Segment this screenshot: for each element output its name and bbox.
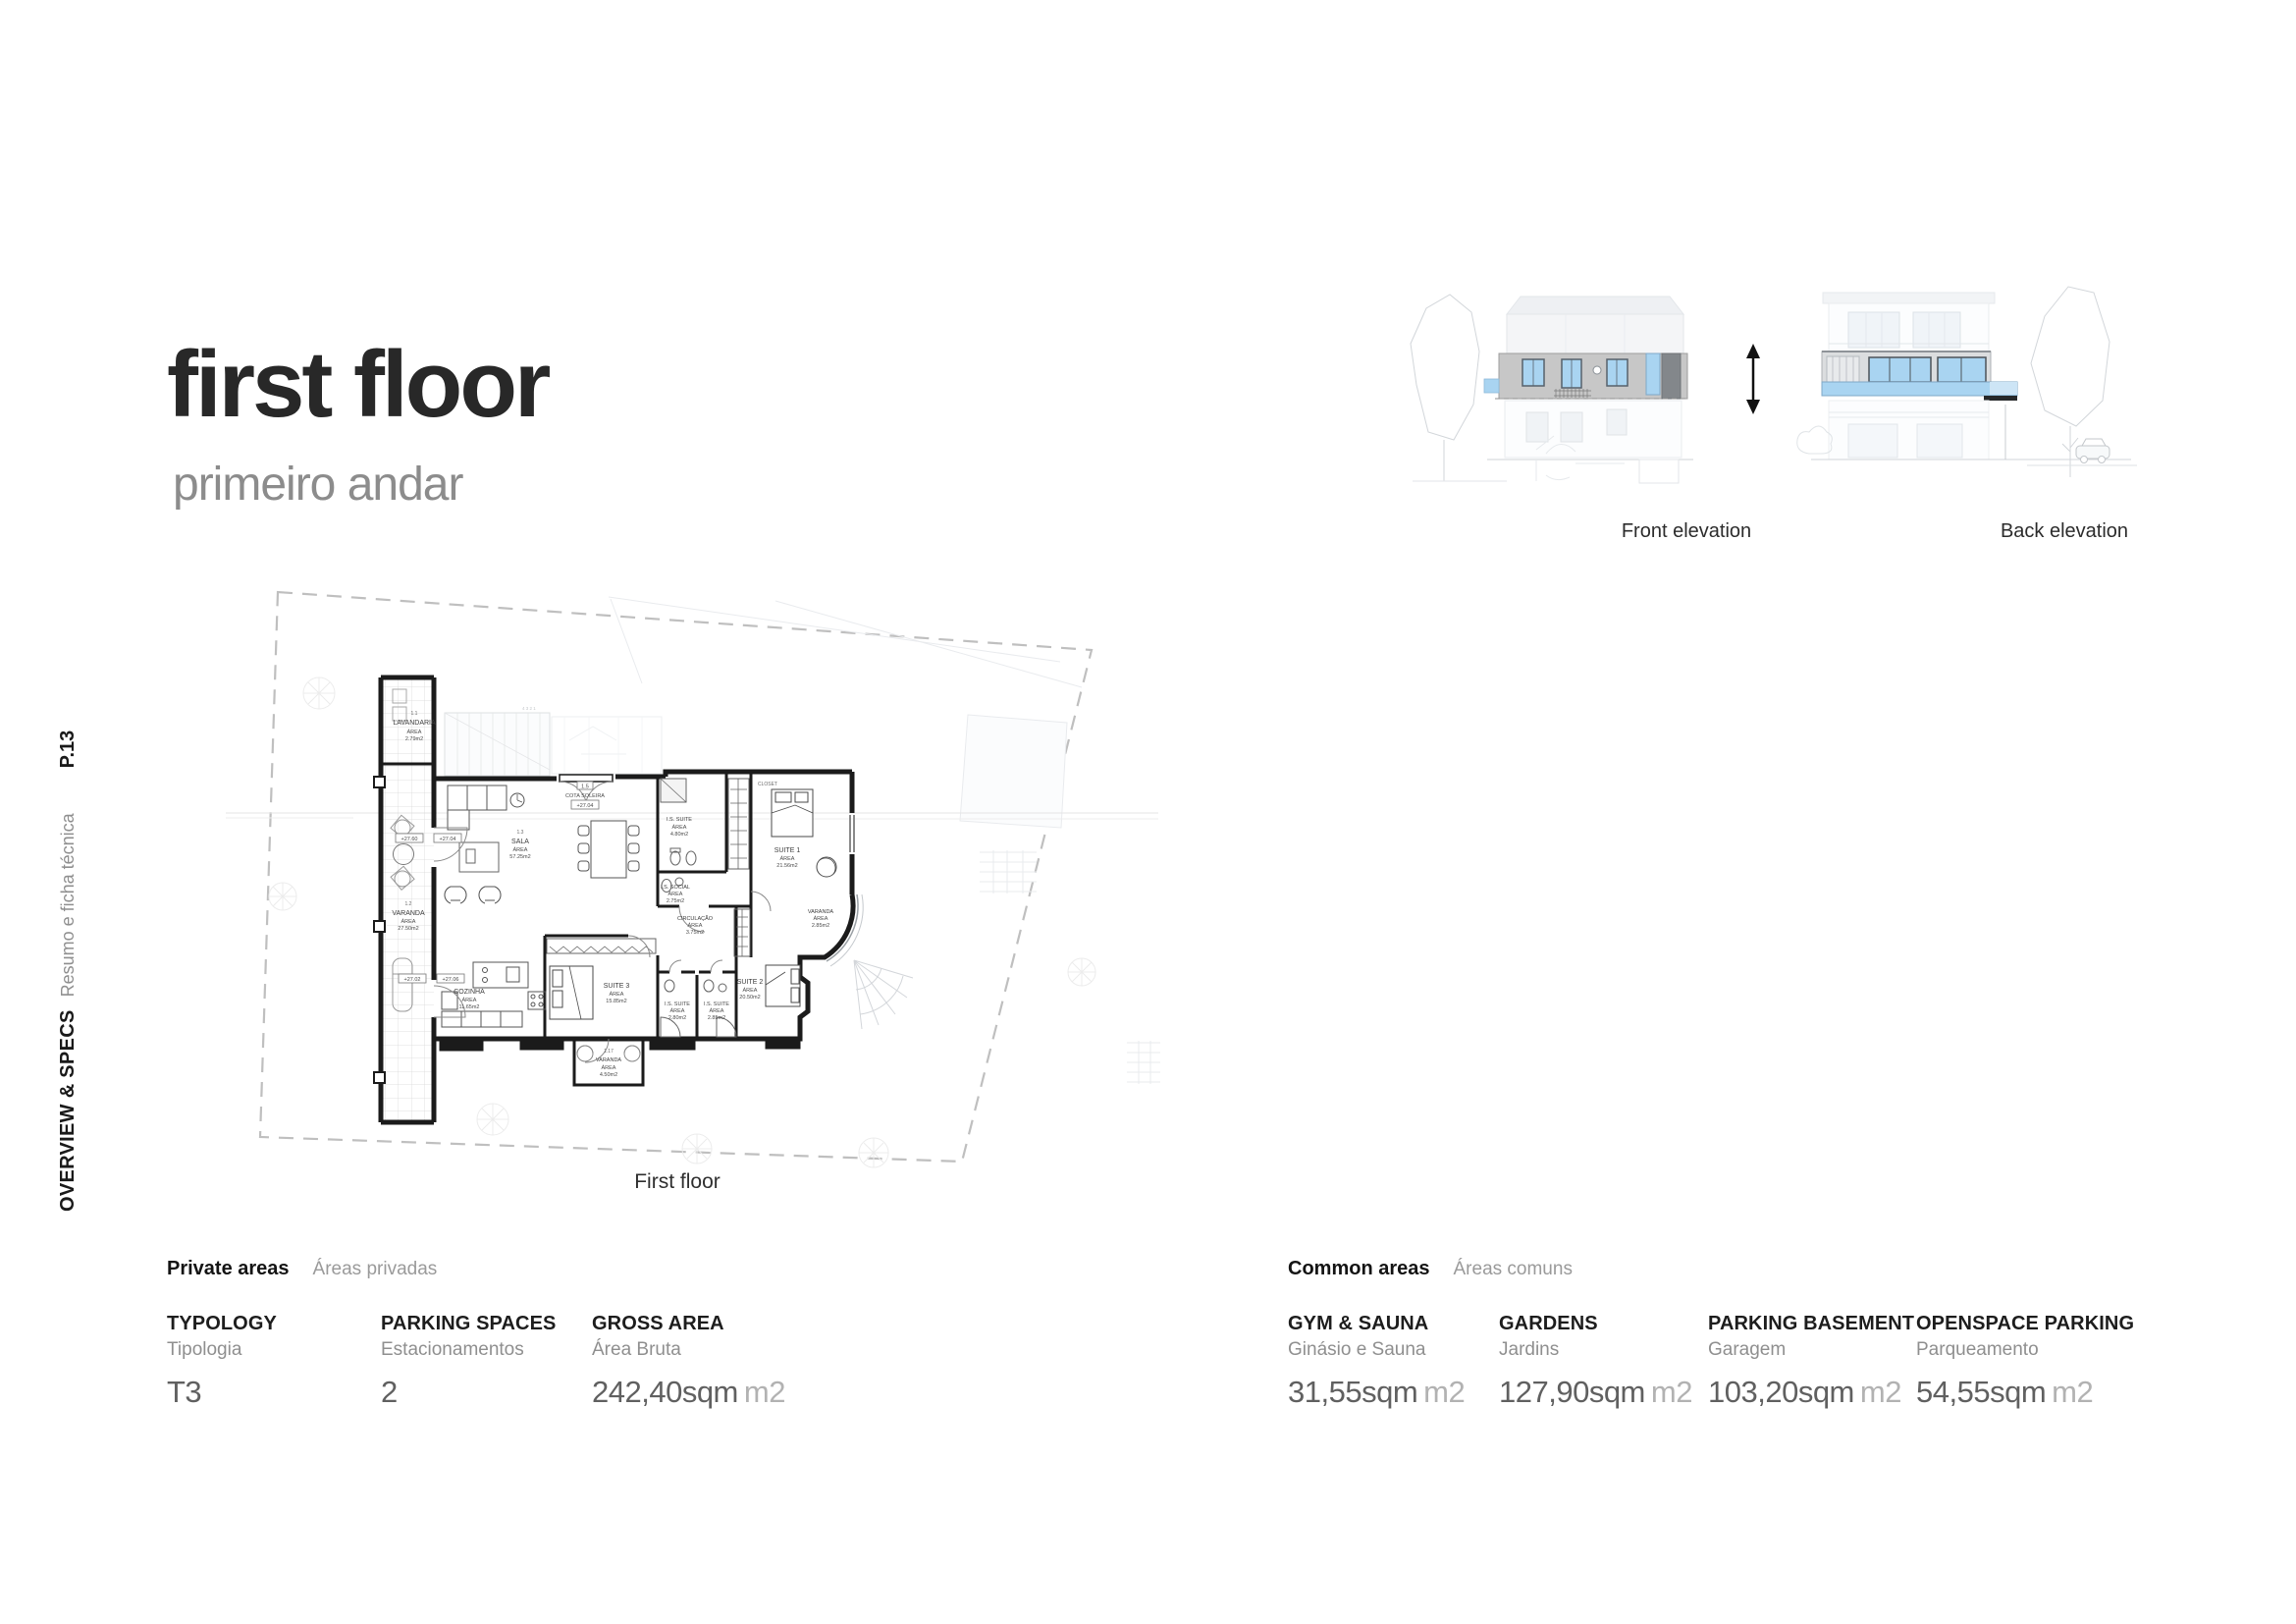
room-label: COZINHA ÁREA 11.65m2 [454, 989, 485, 1010]
elevation-arrow-icon [1746, 344, 1760, 414]
svg-text:CIRCULAÇÃO: CIRCULAÇÃO [677, 915, 714, 922]
svg-text:+27.60: +27.60 [401, 837, 418, 842]
svg-text:+27.04: +27.04 [440, 837, 456, 842]
front-elevation-label: Front elevation [1622, 520, 1751, 542]
cota-soleira-label: 1.5 COTA SOLEIRA +27.04 [565, 782, 605, 809]
svg-text:ÁREA: ÁREA [401, 918, 416, 925]
curved-balcony [827, 894, 913, 1029]
page-title: first floor [167, 338, 548, 432]
svg-text:1.1: 1.1 [411, 711, 418, 717]
svg-text:I.S. SOCIAL: I.S. SOCIAL [661, 885, 690, 891]
svg-text:SUITE 1: SUITE 1 [774, 847, 801, 854]
svg-text:ÁREA: ÁREA [462, 997, 477, 1003]
balcony-strip [374, 677, 434, 1122]
room-label: I.S. SUITE ÁREA 2.85m2 [704, 1001, 729, 1021]
spec-column-gardens: GARDENS Jardins 127,90sqmm2 [1499, 1313, 1692, 1410]
sidebar-section-title: OVERVIEW & SPECS [57, 1009, 80, 1212]
svg-text:21.56m2: 21.56m2 [776, 863, 797, 869]
stairwell-faded: 4 3 2 1 [445, 706, 662, 776]
svg-text:2.85m2: 2.85m2 [708, 1015, 725, 1021]
room-label: 1.17 VARANDA ÁREA 4.50m2 [596, 1049, 622, 1078]
svg-text:2.79m2: 2.79m2 [405, 736, 423, 742]
svg-text:+27.04: +27.04 [577, 803, 594, 809]
svg-text:ÁREA: ÁREA [602, 1064, 616, 1071]
svg-text:I.S. SUITE: I.S. SUITE [667, 817, 692, 823]
svg-text:ÁREA: ÁREA [513, 846, 528, 853]
room-label: CIRCULAÇÃO ÁREA 3.75m2 [677, 915, 714, 936]
spec-column-gym-sauna: GYM & SAUNA Ginásio e Sauna 31,55sqmm2 [1288, 1313, 1465, 1410]
svg-text:+27.02: +27.02 [404, 977, 421, 983]
back-elevation: Back elevation [1797, 287, 2137, 542]
sidebar-section-subtitle: Resumo e ficha técnica [58, 813, 79, 997]
svg-text:I.S. SUITE: I.S. SUITE [704, 1001, 729, 1007]
svg-text:2.80m2: 2.80m2 [668, 1015, 686, 1021]
svg-text:ÁREA: ÁREA [668, 891, 683, 897]
svg-text:COZINHA: COZINHA [454, 989, 485, 996]
svg-text:1.3: 1.3 [517, 830, 524, 836]
room-label: I.S. SOCIAL ÁREA 2.75m2 [661, 885, 690, 904]
svg-text:COTA SOLEIRA: COTA SOLEIRA [565, 793, 605, 799]
svg-text:ÁREA: ÁREA [670, 1007, 685, 1014]
common-areas-header: Common areas Áreas comuns [1288, 1258, 1573, 1280]
svg-text:4.80m2: 4.80m2 [670, 832, 688, 838]
common-areas-title: Common areas [1288, 1258, 1430, 1280]
svg-text:1.5: 1.5 [581, 785, 589, 790]
page-number: P.13 [57, 731, 80, 769]
floor-plan-drawing: 4 3 2 1 [226, 568, 1168, 1235]
stair-numbers: 4 3 2 1 [522, 706, 536, 711]
common-areas-subtitle: Áreas comuns [1454, 1259, 1573, 1280]
svg-text:1.17: 1.17 [604, 1049, 614, 1055]
svg-text:2.85m2: 2.85m2 [812, 923, 829, 929]
svg-text:SUITE 2: SUITE 2 [737, 979, 764, 986]
room-label: SUITE 3 ÁREA 15.85m2 [604, 983, 630, 1004]
sidebar-vertical-text: OVERVIEW & SPECS Resumo e ficha técnica … [57, 731, 80, 1212]
plan-caption: First floor [634, 1170, 721, 1193]
room-label: 1.3 SALA ÁREA 57.25m2 [509, 830, 530, 860]
svg-text:2.75m2: 2.75m2 [667, 898, 684, 904]
svg-text:ÁREA: ÁREA [407, 729, 422, 735]
elevations-drawing: Front elevation [1389, 257, 2174, 562]
spec-column-typology: TYPOLOGY Tipologia T3 [167, 1313, 277, 1410]
room-label: CLOSET [758, 782, 777, 787]
spec-column-gross-area: GROSS AREA Área Bruta 242,40sqmm2 [592, 1313, 785, 1410]
svg-text:SUITE 3: SUITE 3 [604, 983, 630, 990]
site-context [226, 597, 1160, 1084]
svg-text:15.85m2: 15.85m2 [606, 999, 626, 1004]
svg-text:ÁREA: ÁREA [814, 915, 828, 922]
spec-column-parking-spaces: PARKING SPACES Estacionamentos 2 [381, 1313, 556, 1410]
svg-text:27.50m2: 27.50m2 [398, 926, 418, 932]
sala-furniture [445, 785, 639, 903]
svg-text:VARANDA: VARANDA [808, 909, 834, 915]
page-subtitle: primeiro andar [173, 458, 462, 512]
room-label: I.S. SUITE ÁREA 4.80m2 [667, 817, 692, 838]
private-areas-title: Private areas [167, 1258, 290, 1280]
svg-text:SALA: SALA [511, 839, 529, 845]
svg-text:VARANDA: VARANDA [596, 1057, 622, 1063]
svg-text:1.2: 1.2 [405, 901, 412, 907]
room-label: I.S. SUITE ÁREA 2.80m2 [665, 1001, 690, 1021]
svg-text:+27.06: +27.06 [443, 977, 459, 983]
brochure-page: OVERVIEW & SPECS Resumo e ficha técnica … [0, 0, 2296, 1624]
svg-text:ÁREA: ÁREA [688, 922, 703, 929]
svg-text:11.65m2: 11.65m2 [459, 1004, 480, 1010]
svg-text:3.75m2: 3.75m2 [686, 930, 704, 936]
room-label: VARANDA ÁREA 2.85m2 [808, 909, 834, 929]
front-elevation: Front elevation [1411, 295, 1751, 542]
svg-text:57.25m2: 57.25m2 [509, 854, 530, 860]
svg-text:ÁREA: ÁREA [743, 987, 758, 994]
svg-text:4.50m2: 4.50m2 [600, 1072, 617, 1078]
svg-text:20.50m2: 20.50m2 [739, 995, 760, 1001]
svg-text:VARANDA: VARANDA [392, 910, 425, 917]
spec-column-openspace-parking: OPENSPACE PARKING Parqueamento 54,55sqmm… [1916, 1313, 2134, 1410]
back-elevation-label: Back elevation [2001, 520, 2128, 542]
room-label: SUITE 2 ÁREA 20.50m2 [737, 979, 764, 1001]
room-label: SUITE 1 ÁREA 21.56m2 [774, 847, 801, 869]
svg-text:LAVANDARIA: LAVANDARIA [393, 720, 436, 727]
private-areas-header: Private areas Áreas privadas [167, 1258, 437, 1280]
svg-text:ÁREA: ÁREA [672, 824, 687, 831]
svg-text:I.S. SUITE: I.S. SUITE [665, 1001, 690, 1007]
svg-text:ÁREA: ÁREA [610, 991, 624, 998]
private-areas-subtitle: Áreas privadas [313, 1259, 438, 1280]
svg-text:ÁREA: ÁREA [710, 1007, 724, 1014]
spec-column-parking-basement: PARKING BASEMENT Garagem 103,20sqmm2 [1708, 1313, 1914, 1410]
svg-text:ÁREA: ÁREA [780, 855, 795, 862]
